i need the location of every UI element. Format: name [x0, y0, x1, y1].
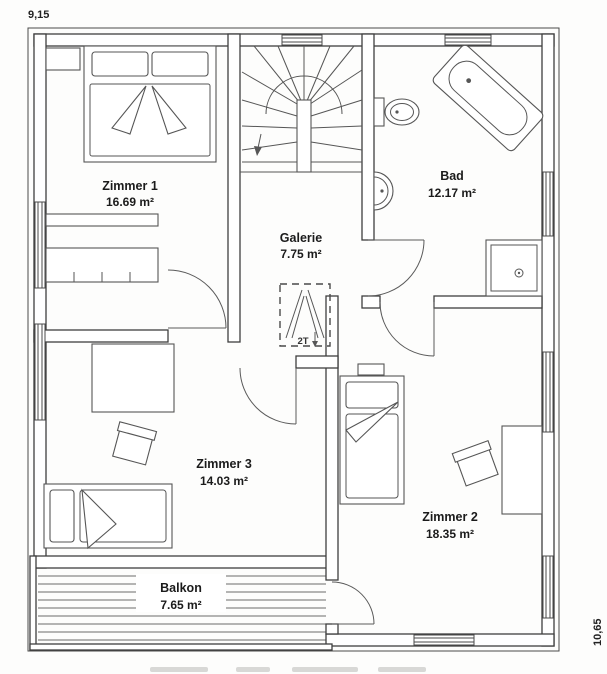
window-left-zimmer1: [35, 202, 45, 288]
bathtub: [431, 43, 545, 152]
window-right-zimmer2-lower: [543, 556, 553, 618]
window-top-stair: [282, 35, 322, 45]
room-label-zimmer3: Zimmer 3: [196, 457, 252, 471]
room-area-galerie: 7.75 m²: [280, 247, 321, 261]
sink: [374, 172, 393, 210]
dimension-width-label: 9,15: [28, 9, 49, 21]
toilet: [374, 98, 419, 126]
wardrobe: [46, 248, 158, 282]
loft-hatch-label: 2T: [297, 336, 308, 347]
chair-zimmer3: [111, 422, 157, 466]
door-zimmer1: [168, 270, 226, 328]
room-area-zimmer3: 14.03 m²: [200, 474, 248, 488]
shelf: [46, 214, 158, 226]
door-bad: [368, 240, 424, 296]
room-area-bad: 12.17 m²: [428, 186, 476, 200]
dimension-height-label: 10,65: [592, 618, 604, 646]
staircase: [240, 46, 362, 172]
double-bed: [84, 46, 216, 162]
room-area-balkon: 7.65 m²: [160, 598, 201, 612]
stair-direction-arrow: [254, 134, 262, 156]
room-area-zimmer1: 16.69 m²: [106, 195, 154, 209]
door-zimmer2: [380, 302, 434, 356]
room-label-balkon: Balkon: [160, 581, 202, 595]
window-left-zimmer3: [35, 324, 45, 420]
single-bed-zimmer3: [44, 484, 172, 548]
window-right-bad: [543, 172, 553, 236]
room-label-zimmer2: Zimmer 2: [422, 510, 478, 524]
shower: [486, 240, 542, 296]
desk-zimmer2: [502, 426, 542, 514]
window-right-zimmer2: [543, 352, 553, 432]
room-label-galerie: Galerie: [280, 231, 322, 245]
door-balkon: [332, 582, 374, 624]
window-bottom-zimmer2: [414, 635, 474, 645]
door-zimmer3: [240, 368, 296, 424]
single-bed-zimmer2: [340, 364, 404, 504]
window-top-bad: [445, 35, 491, 45]
floor-plan-drawing: Zimmer 1 16.69 m² Galerie 7.75 m² Bad 12…: [0, 0, 607, 674]
nightstand: [46, 48, 80, 70]
room-label-zimmer1: Zimmer 1: [102, 179, 158, 193]
chair-zimmer2: [452, 441, 500, 487]
room-label-bad: Bad: [440, 169, 464, 183]
desk-zimmer3: [92, 344, 174, 412]
floor-plan: Zimmer 1 16.69 m² Galerie 7.75 m² Bad 12…: [0, 0, 607, 674]
cropped-caption-artifact: [150, 667, 426, 672]
room-area-zimmer2: 18.35 m²: [426, 527, 474, 541]
